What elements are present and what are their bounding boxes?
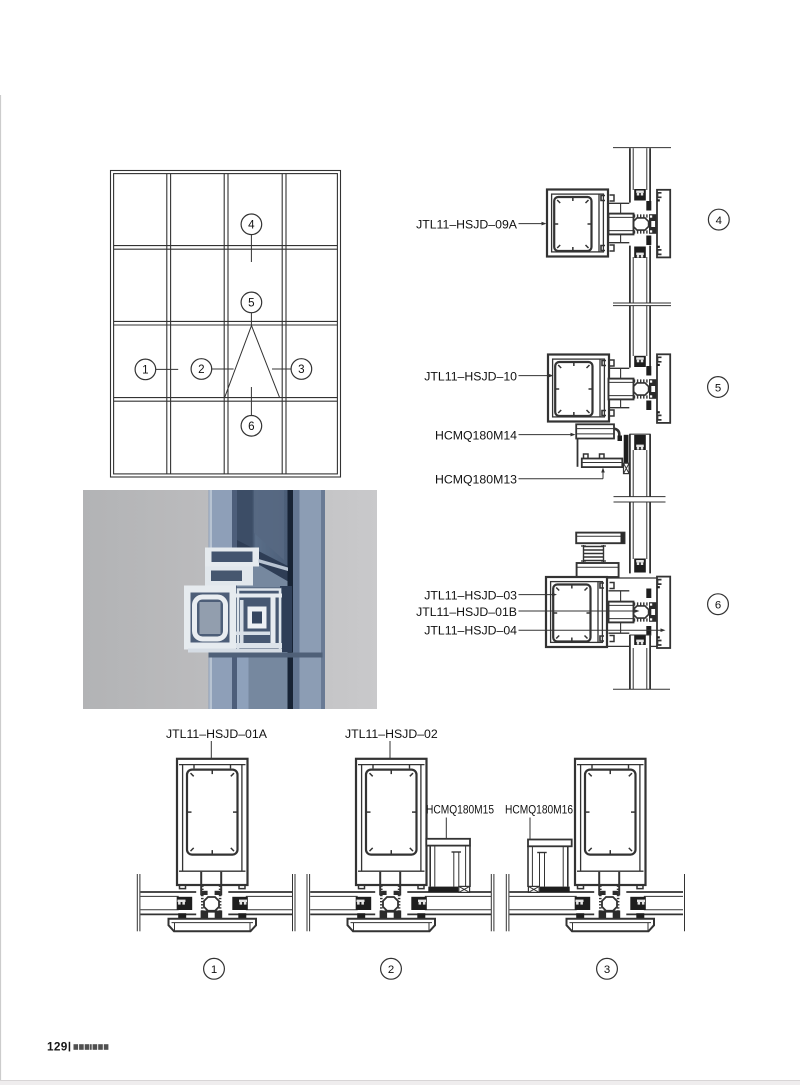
svg-text:HCMQ180M16: HCMQ180M16 [505,802,573,816]
svg-text:JTL11–HSJD–09A: JTL11–HSJD–09A [416,217,518,231]
svg-text:JTL11–HSJD–01A: JTL11–HSJD–01A [166,727,268,741]
svg-text:JTL11–HSJD–04: JTL11–HSJD–04 [424,623,517,637]
svg-text:JTL11–HSJD–02: JTL11–HSJD–02 [345,727,438,741]
svg-text:5: 5 [715,382,721,394]
svg-text:129: 129 [47,1040,68,1054]
svg-text:1: 1 [142,364,148,377]
svg-text:HCMQ180M13: HCMQ180M13 [435,472,517,486]
svg-text:3: 3 [298,363,304,376]
svg-text:2: 2 [388,964,394,976]
svg-text:2: 2 [198,363,204,376]
svg-text:3: 3 [604,964,610,976]
svg-text:JTL11–HSJD–10: JTL11–HSJD–10 [424,369,517,383]
svg-text:1: 1 [211,964,217,976]
svg-text:HCMQ180M14: HCMQ180M14 [435,428,517,442]
svg-text:5: 5 [248,297,254,310]
svg-text:JTL11–HSJD–03: JTL11–HSJD–03 [424,588,517,602]
svg-text:4: 4 [716,215,722,227]
svg-text:4: 4 [248,219,255,232]
svg-text:6: 6 [715,600,721,612]
svg-text:6: 6 [248,420,254,433]
svg-text:JTL11–HSJD–01B: JTL11–HSJD–01B [416,605,517,619]
svg-text:HCMQ180M15: HCMQ180M15 [426,802,494,816]
